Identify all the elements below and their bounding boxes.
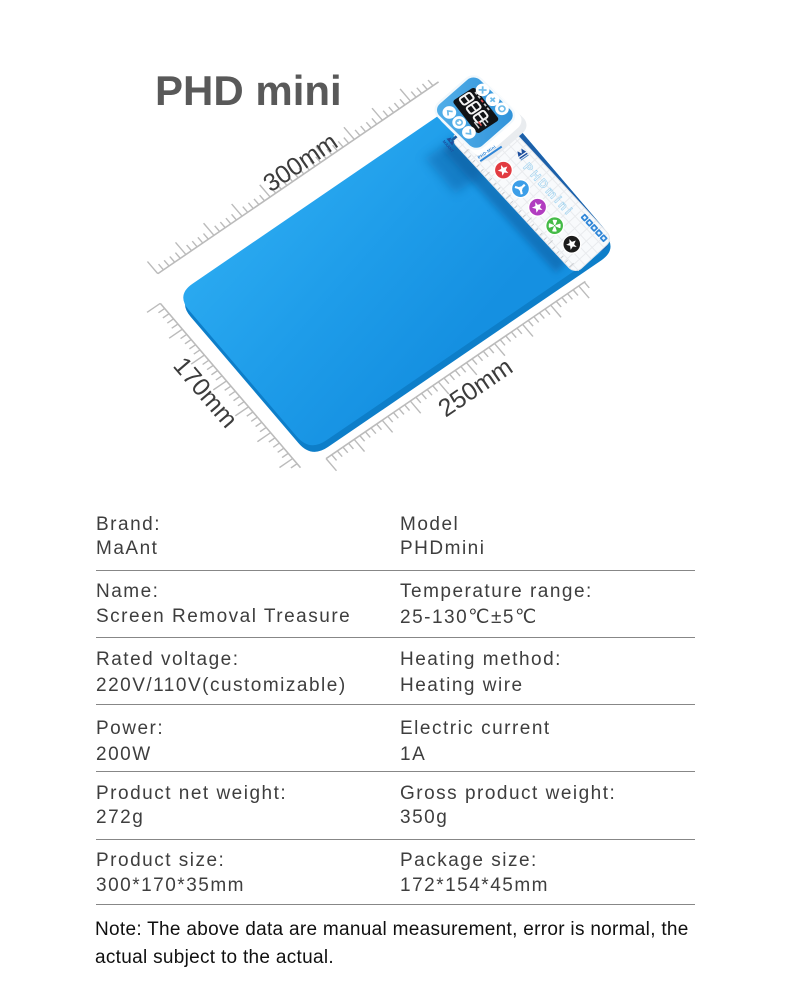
svg-text:300mm: 300mm (258, 128, 343, 198)
